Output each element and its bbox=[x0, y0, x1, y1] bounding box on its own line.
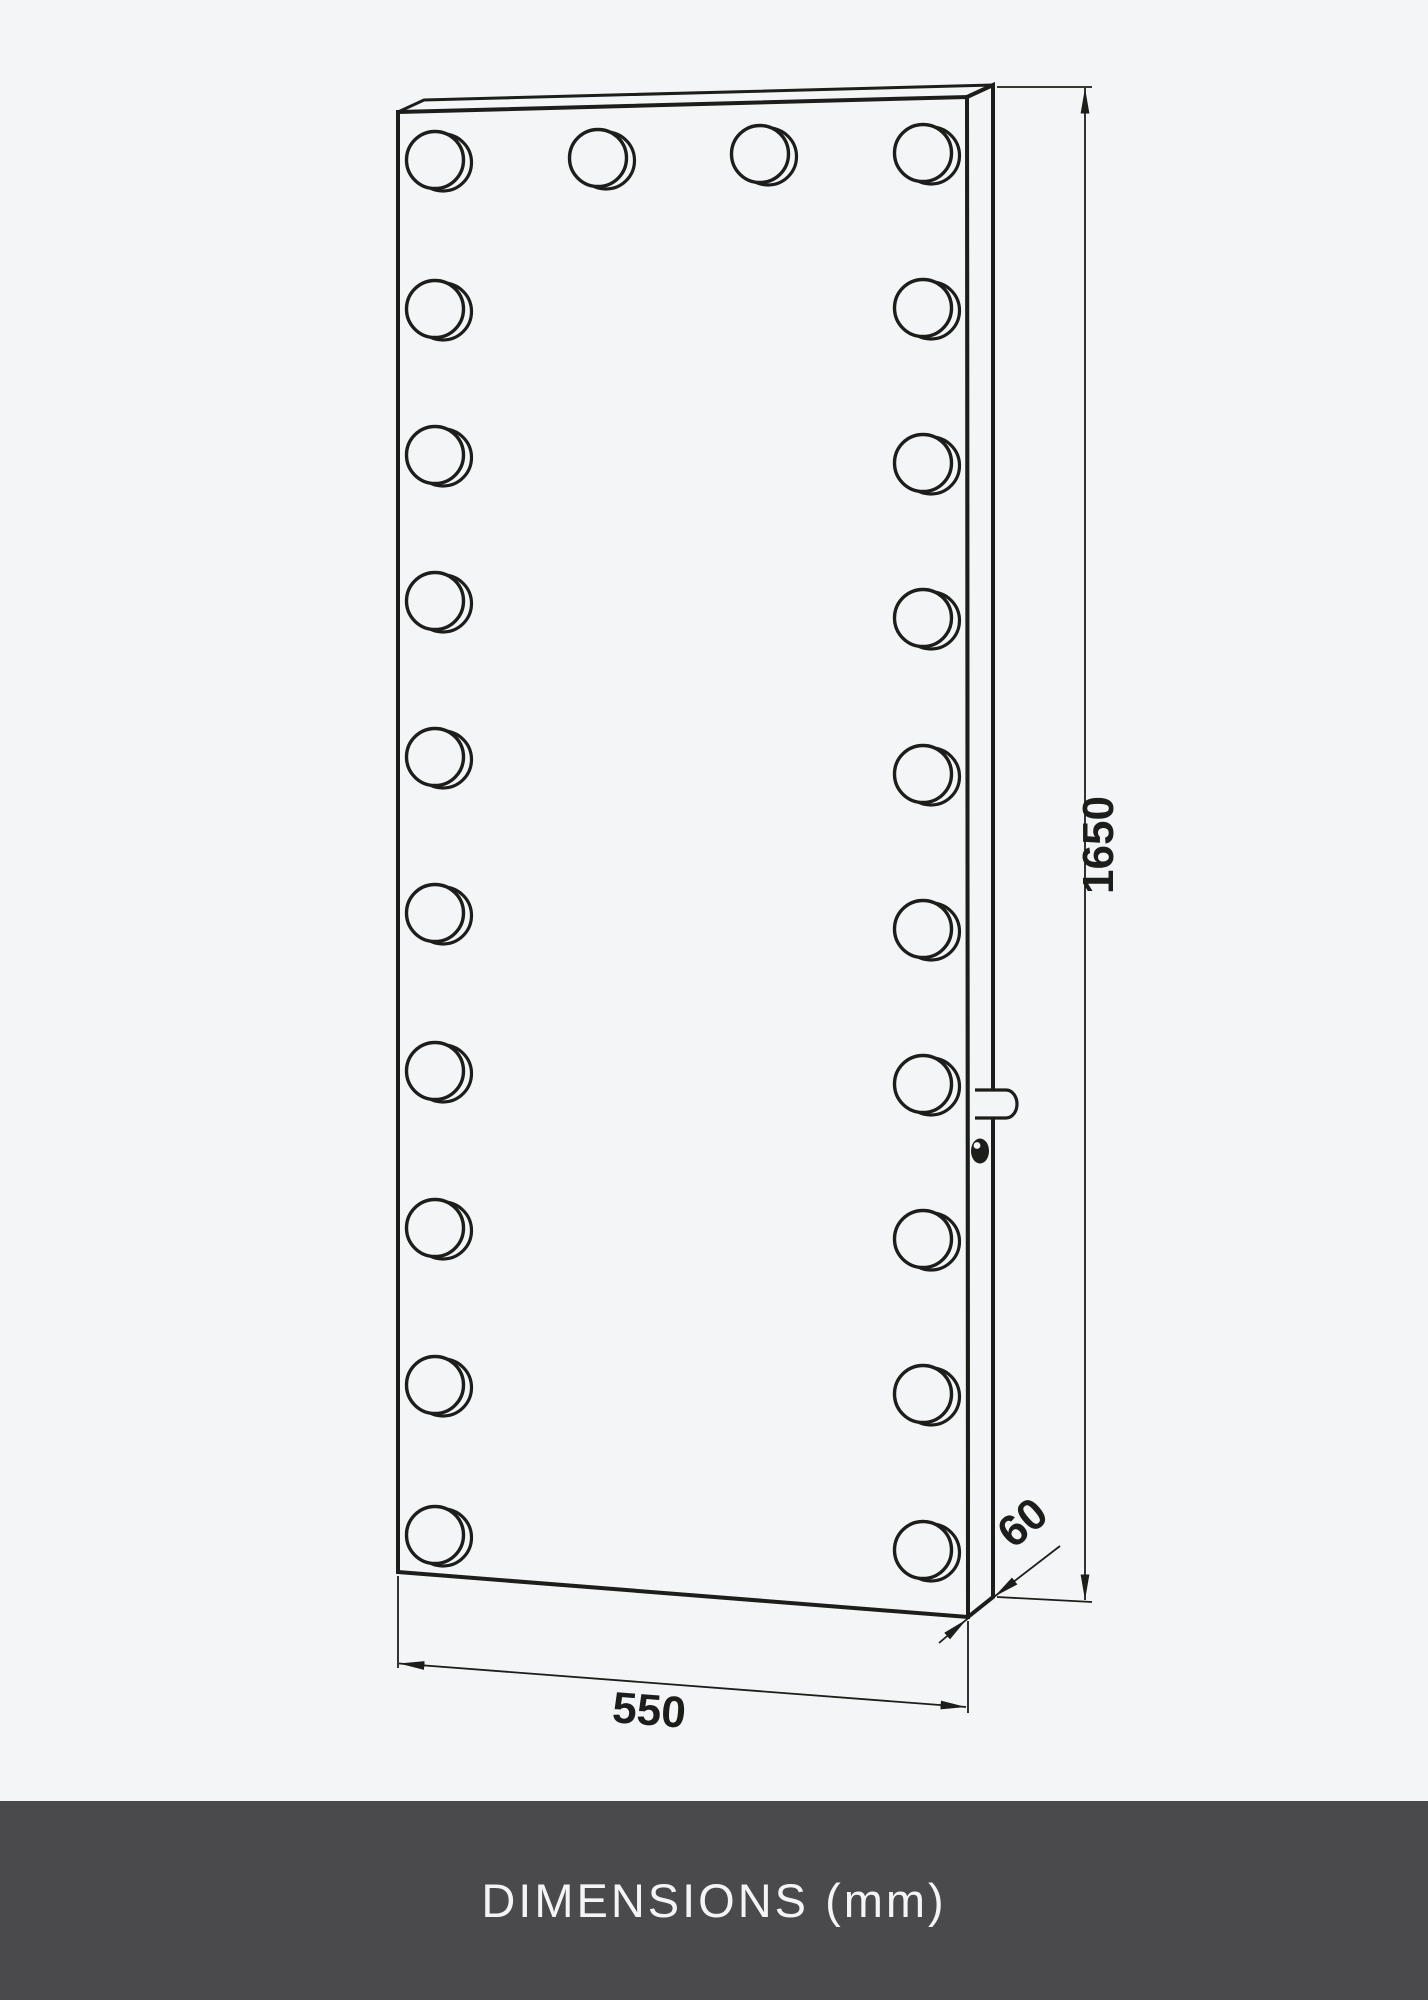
mirror-front-face bbox=[398, 97, 968, 1617]
bulb-icon bbox=[895, 280, 952, 337]
depth-dimension-line-front bbox=[939, 1620, 967, 1644]
bulb-icon bbox=[407, 1357, 464, 1414]
height-dimension-label: 1650 bbox=[1074, 796, 1123, 894]
bulb-icon bbox=[895, 901, 952, 958]
bulb-icon bbox=[895, 1366, 952, 1423]
bulb-icon bbox=[407, 729, 464, 786]
bulb-icon bbox=[407, 573, 464, 630]
bulb-icon bbox=[407, 885, 464, 942]
bulb-icon bbox=[407, 1200, 464, 1257]
height-dimension: 1650 bbox=[997, 87, 1123, 1602]
dimmer-knob-icon bbox=[975, 1090, 1017, 1118]
footer-title: DIMENSIONS (mm) bbox=[481, 1873, 946, 1928]
bulb-icon bbox=[895, 435, 952, 492]
height-extension-bottom bbox=[997, 1597, 1092, 1602]
bulb-icon bbox=[895, 746, 952, 803]
sensor-highlight-icon bbox=[974, 1142, 981, 1149]
diagram-area: 1650 550 60 bbox=[0, 0, 1428, 1801]
bulb-icon bbox=[407, 281, 464, 338]
width-dimension-label: 550 bbox=[611, 1683, 688, 1737]
mirror-side-face bbox=[967, 85, 993, 1617]
bulb-icon bbox=[407, 1043, 464, 1100]
bulb-icon bbox=[407, 1507, 464, 1564]
product-dimension-page: 1650 550 60 DIMENSIONS (mm) bbox=[0, 0, 1428, 2000]
bulb-icon bbox=[895, 125, 952, 182]
bulb-icon bbox=[407, 132, 464, 189]
bulb-icon bbox=[895, 1211, 952, 1268]
bulb-icon bbox=[407, 427, 464, 484]
bulb-icon bbox=[895, 590, 952, 647]
mirror-dimension-drawing: 1650 550 60 bbox=[0, 0, 1428, 1801]
depth-dimension-label: 60 bbox=[988, 1488, 1057, 1557]
depth-dimension-line-back bbox=[995, 1546, 1061, 1597]
bulb-icon bbox=[895, 1056, 952, 1113]
bulb-icon bbox=[895, 1522, 952, 1579]
bulb-icon bbox=[732, 126, 789, 183]
power-sensor-icon bbox=[971, 1139, 989, 1164]
footer-bar: DIMENSIONS (mm) bbox=[0, 1801, 1428, 2000]
bulb-icon bbox=[570, 130, 627, 187]
